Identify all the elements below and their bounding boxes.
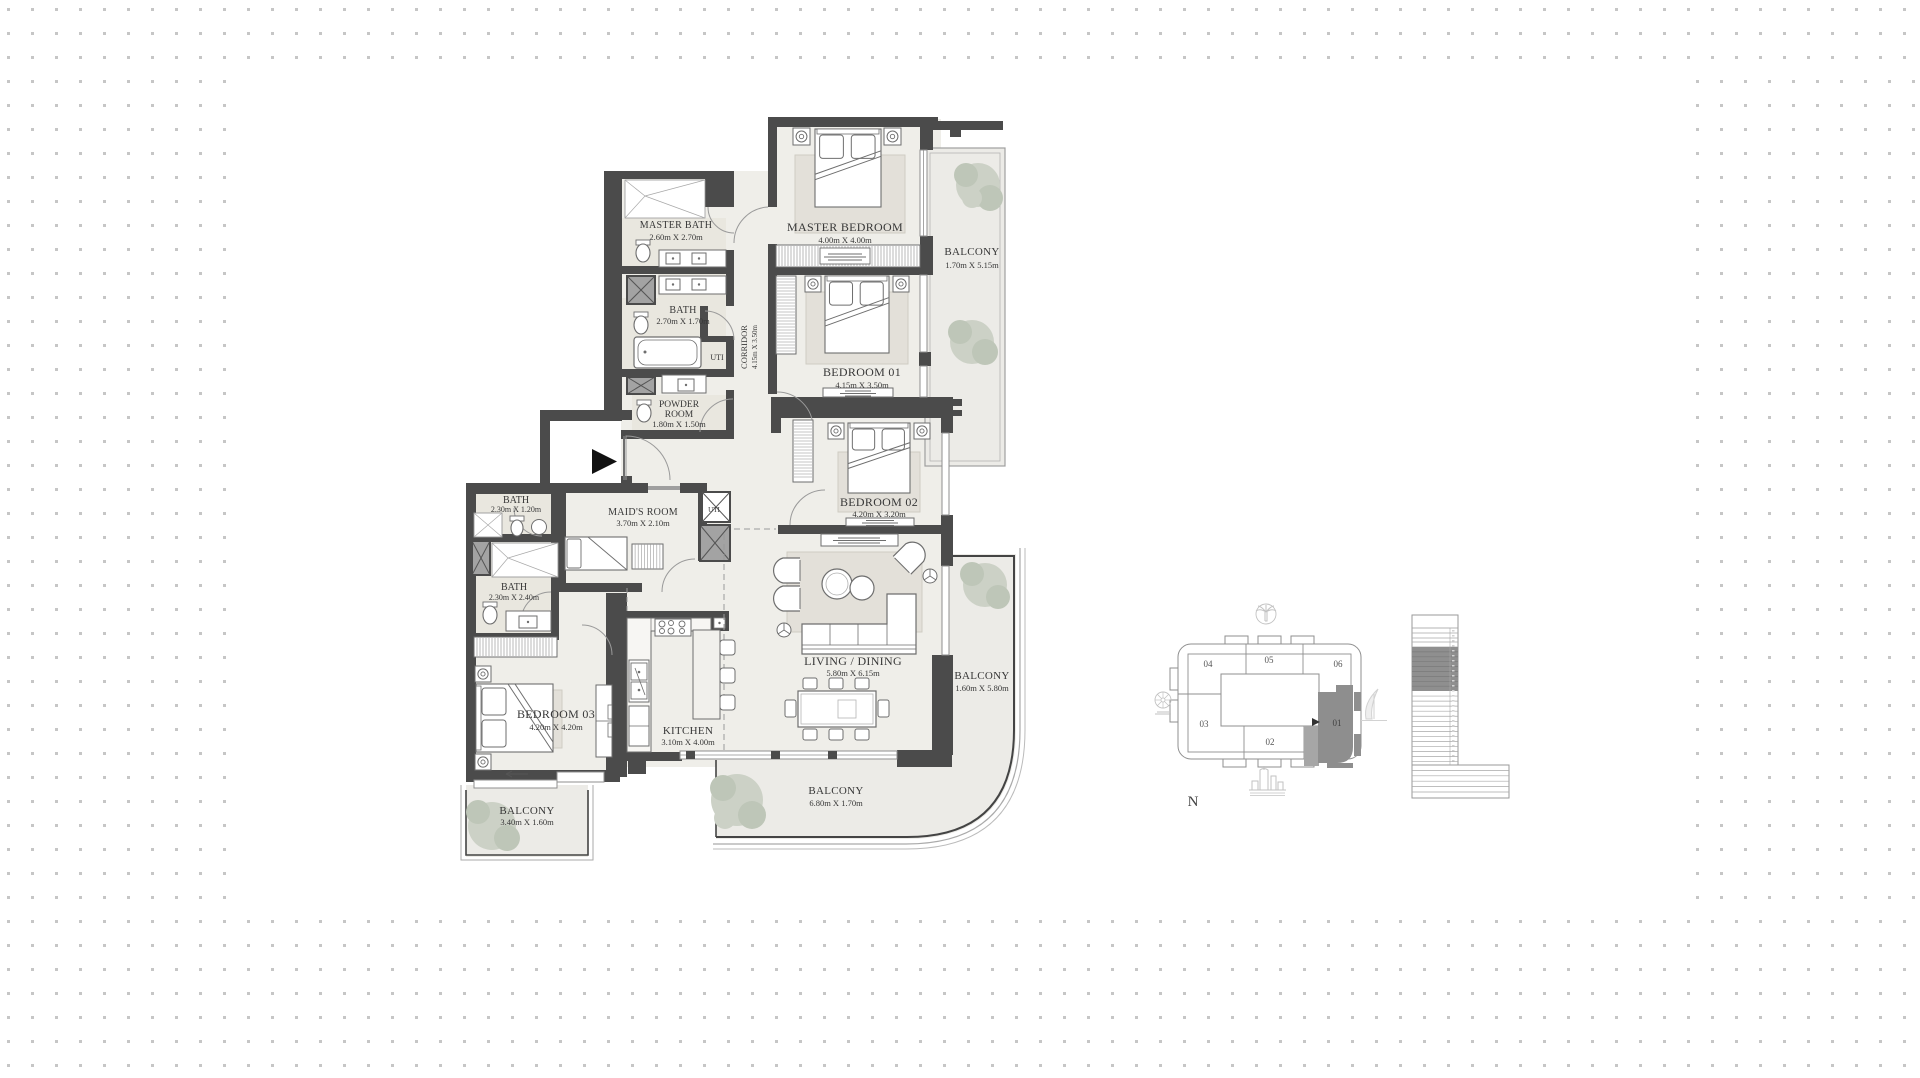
svg-text:4.20m X 3.20m: 4.20m X 3.20m — [852, 509, 906, 519]
svg-text:N: N — [1188, 794, 1199, 810]
svg-text:03: 03 — [1200, 719, 1210, 729]
svg-text:BALCONY: BALCONY — [808, 785, 863, 797]
svg-text:2.70m X 1.70m: 2.70m X 1.70m — [656, 316, 710, 326]
svg-text:POWDER: POWDER — [659, 400, 700, 410]
svg-text:BEDROOM 03: BEDROOM 03 — [517, 707, 595, 721]
svg-text:BATH: BATH — [501, 582, 527, 593]
svg-text:1.60m X 5.80m: 1.60m X 5.80m — [955, 683, 1009, 693]
svg-text:01: 01 — [1333, 718, 1342, 728]
svg-text:BALCONY: BALCONY — [944, 246, 999, 258]
svg-text:3.40m X 1.60m: 3.40m X 1.60m — [500, 817, 554, 827]
svg-text:LIVING / DINING: LIVING / DINING — [804, 654, 902, 668]
svg-text:BALCONY: BALCONY — [954, 670, 1009, 682]
svg-text:2.30m X 2.40m: 2.30m X 2.40m — [489, 593, 540, 602]
svg-text:4.15m X 3.50m: 4.15m X 3.50m — [751, 324, 759, 369]
svg-text:1.70m X 5.15m: 1.70m X 5.15m — [945, 260, 999, 270]
svg-text:05: 05 — [1265, 655, 1275, 665]
svg-text:4.15m X 3.50m: 4.15m X 3.50m — [835, 380, 889, 390]
svg-text:4.20m X 4.20m: 4.20m X 4.20m — [529, 722, 583, 732]
svg-text:3.10m X 4.00m: 3.10m X 4.00m — [661, 737, 715, 747]
svg-text:BALCONY: BALCONY — [499, 805, 554, 817]
svg-text:CORRIDOR: CORRIDOR — [739, 325, 749, 369]
svg-text:04: 04 — [1204, 659, 1214, 669]
svg-text:1.80m X 1.50m: 1.80m X 1.50m — [652, 419, 706, 429]
svg-text:BEDROOM 02: BEDROOM 02 — [840, 495, 918, 509]
svg-text:5.80m X 6.15m: 5.80m X 6.15m — [826, 668, 880, 678]
svg-text:3.70m X 2.10m: 3.70m X 2.10m — [616, 518, 670, 528]
svg-text:BATH: BATH — [669, 305, 696, 316]
svg-text:6.80m X 1.70m: 6.80m X 1.70m — [809, 798, 863, 808]
svg-text:06: 06 — [1334, 659, 1344, 669]
svg-text:MASTER BATH: MASTER BATH — [640, 220, 712, 231]
svg-text:KITCHEN: KITCHEN — [663, 725, 713, 737]
svg-text:MAID'S ROOM: MAID'S ROOM — [608, 507, 678, 518]
svg-text:UTI: UTI — [710, 353, 724, 362]
svg-text:BEDROOM 01: BEDROOM 01 — [823, 365, 901, 379]
svg-text:4.00m X 4.00m: 4.00m X 4.00m — [818, 235, 872, 245]
svg-text:02: 02 — [1266, 737, 1275, 747]
svg-text:MASTER BEDROOM: MASTER BEDROOM — [787, 220, 903, 234]
svg-text:UTI: UTI — [708, 506, 720, 514]
svg-text:2.60m X 2.70m: 2.60m X 2.70m — [649, 232, 703, 242]
